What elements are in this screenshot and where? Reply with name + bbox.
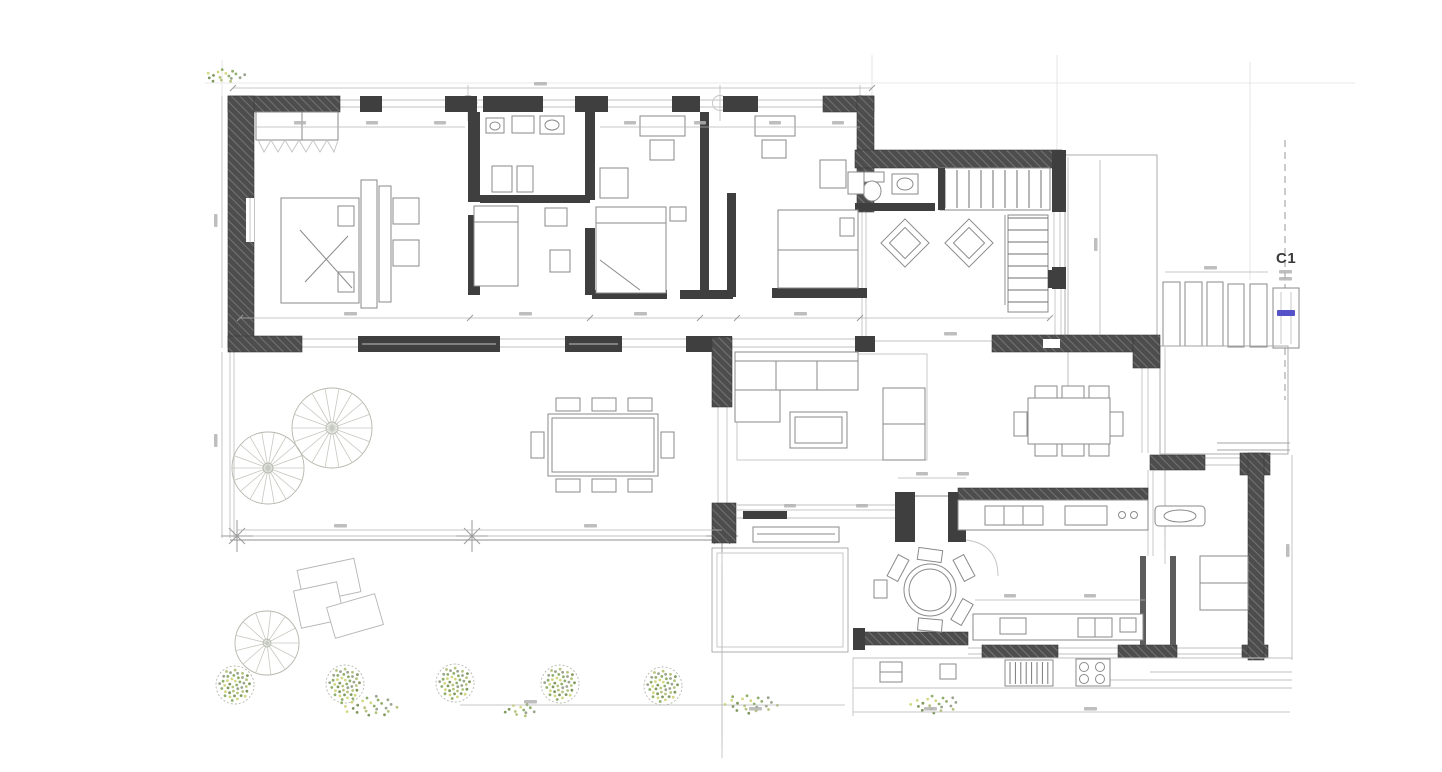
tv-cabinet [883, 388, 925, 460]
floor-plan-page: C1 [0, 0, 1442, 772]
armchair [600, 168, 628, 198]
kitchen-island [958, 488, 1148, 530]
side-chair [393, 198, 419, 224]
bedroom3-furniture [755, 116, 864, 288]
single-bed [474, 206, 518, 286]
kitchen-counter [973, 614, 1143, 640]
c1-accent [1277, 310, 1295, 316]
double-bed [281, 198, 359, 303]
c1-label: C1 [1276, 250, 1296, 267]
deck-bottom [712, 548, 848, 758]
stepping-pavers [1163, 282, 1267, 347]
terrace-trees [232, 388, 372, 504]
section-marker-c1: C1 [1273, 140, 1299, 400]
garden-trees [216, 664, 682, 705]
side-table [874, 580, 887, 598]
desk [755, 116, 795, 136]
nightstand [670, 207, 686, 221]
study-furniture [1155, 506, 1248, 610]
grill [1005, 660, 1053, 686]
breakfast-table [874, 547, 975, 632]
tree [326, 665, 364, 703]
tree [644, 667, 682, 705]
bed [596, 207, 666, 293]
vanity [1155, 506, 1205, 526]
wardrobe [256, 112, 338, 152]
bed [778, 210, 858, 288]
nightstand [848, 172, 864, 194]
cooktop [1076, 659, 1110, 686]
desk-chair [762, 140, 786, 158]
desk-chair [650, 140, 674, 160]
armchair [881, 219, 929, 267]
floor-plan-svg: C1 [0, 0, 1442, 772]
tree [216, 666, 254, 704]
entry-hall-furniture [860, 172, 993, 267]
garden-lounge [294, 558, 384, 638]
armchair [820, 160, 846, 188]
tree [541, 665, 579, 703]
daybed [1200, 556, 1248, 610]
master-bedroom-furniture [256, 112, 419, 308]
armchair [945, 219, 993, 267]
headboard-panel [361, 180, 377, 308]
desk [640, 116, 685, 136]
living-room-furniture [735, 352, 927, 460]
terrace-dining-table [531, 398, 674, 492]
tree [436, 664, 474, 702]
bathroom-fixtures [860, 172, 918, 201]
deck-top-right [1065, 155, 1157, 420]
dining-table-indoor [1014, 386, 1123, 456]
side-chair [393, 240, 419, 266]
bedroom2-furniture [596, 116, 686, 293]
spiral-stair [235, 611, 299, 675]
hedge [207, 68, 246, 83]
